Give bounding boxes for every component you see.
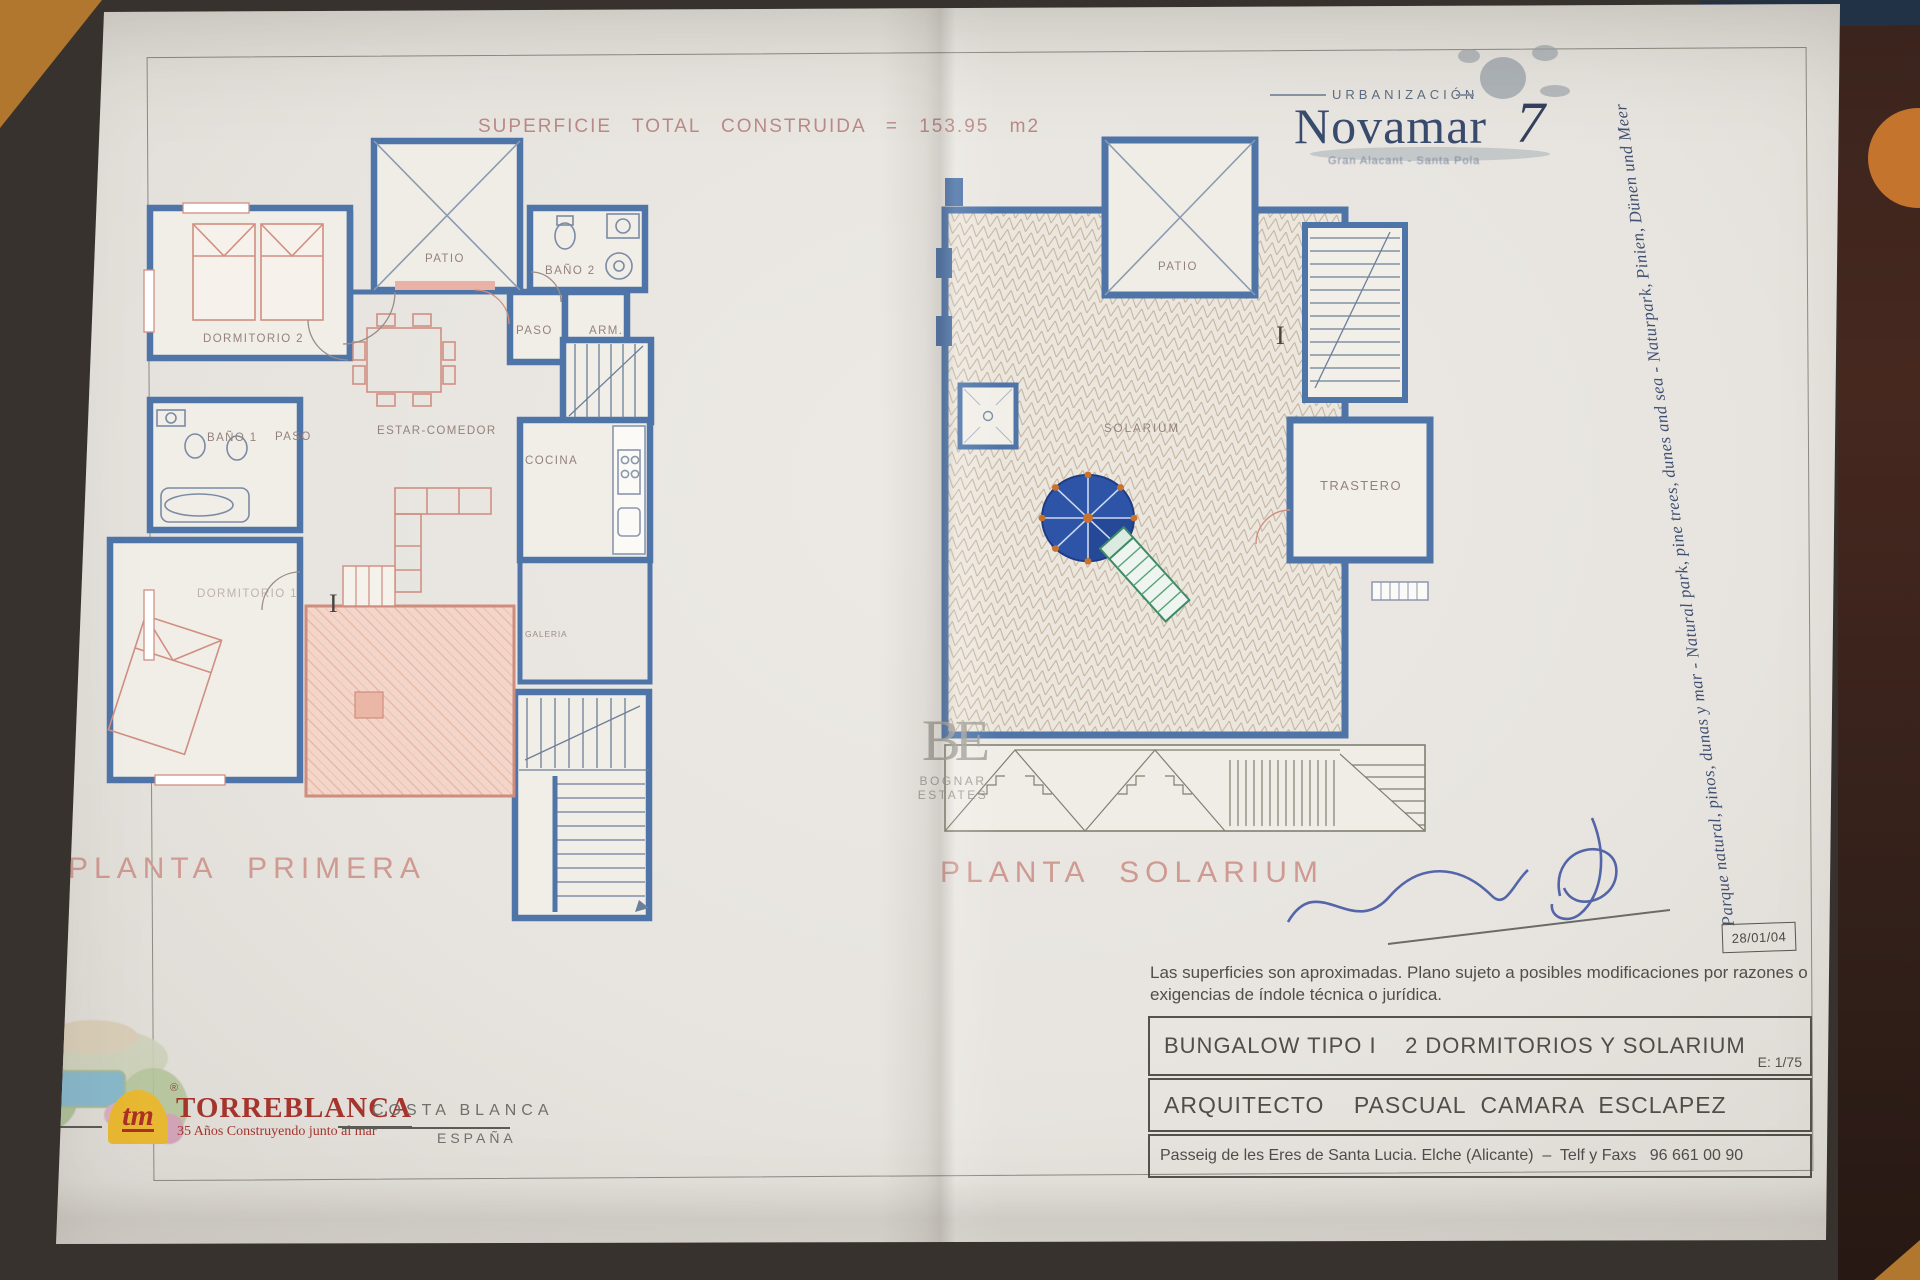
paper-vignette [0, 0, 1920, 1280]
photo-corner-orange-tl [0, 0, 102, 128]
plan-sheet-paper: SUPERFICIE TOTAL CONSTRUIDA = 153.95 m2 … [0, 0, 1920, 1280]
